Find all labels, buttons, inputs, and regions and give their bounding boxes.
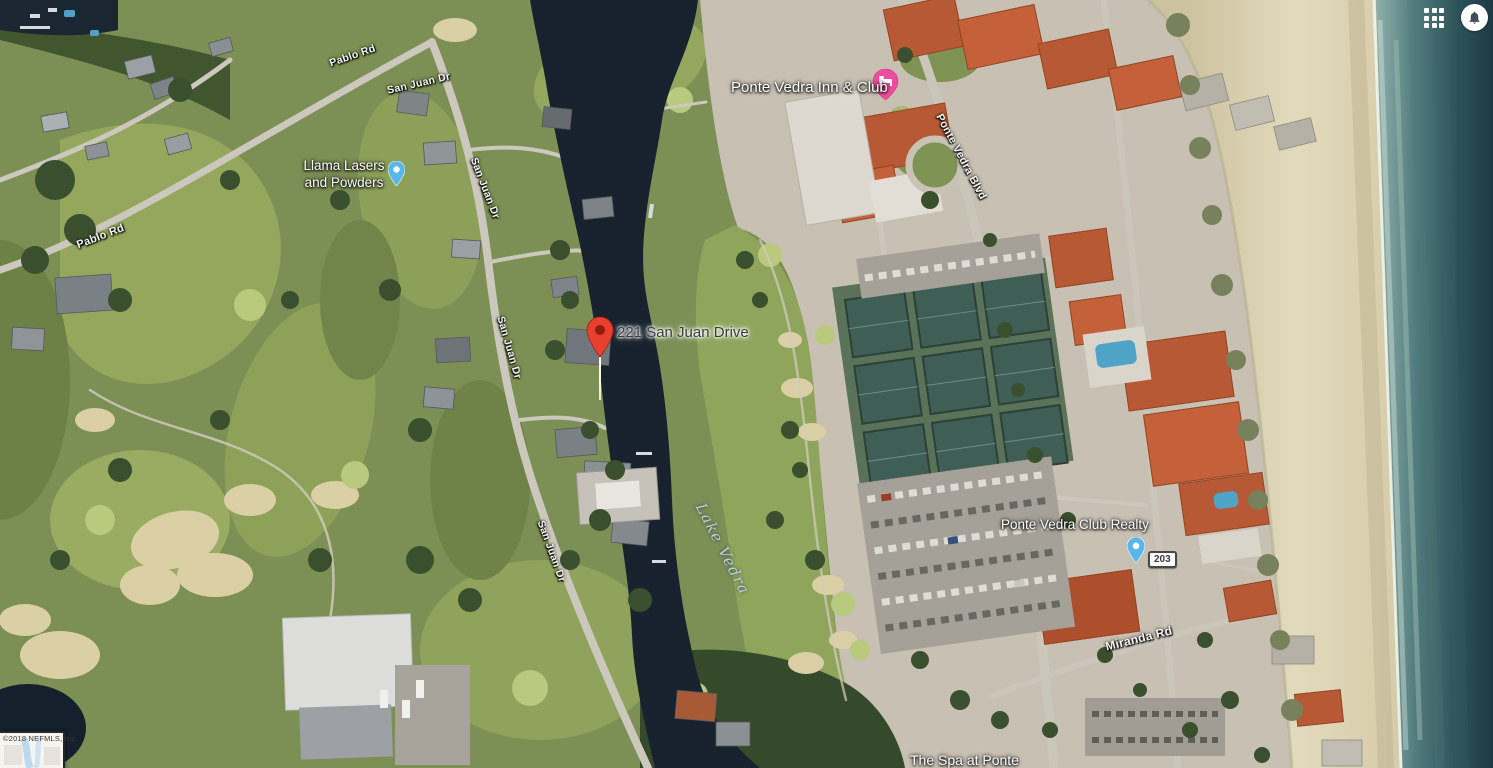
apps-grid-icon[interactable] [1424,8,1444,28]
satellite-imagery [0,0,1493,768]
route-shield-203: 203 [1148,551,1177,568]
bell-icon [1467,10,1482,25]
place-label-the-spa[interactable]: The Spa at Ponte [910,752,1019,768]
map-canvas[interactable]: Ponte Vedra Inn & Club Llama Lasers and … [0,0,1493,768]
notifications-button[interactable] [1461,4,1488,31]
poi-pin-icon[interactable] [1127,537,1145,568]
place-label-ponte-vedra-inn-club[interactable]: Ponte Vedra Inn & Club [731,79,888,96]
place-label-line2: and Powders [305,175,384,190]
copyright-attribution: ©2018 NEFMLS, Inc. [3,734,78,743]
marker-leader-line [599,357,601,400]
place-label-llama-lasers[interactable]: Llama Lasers and Powders [294,157,394,191]
searched-address-label[interactable]: 221 San Juan Drive [617,324,749,341]
place-label-ponte-vedra-club-realty[interactable]: Ponte Vedra Club Realty [1001,517,1149,532]
place-label-line1: Llama Lasers [303,158,384,173]
red-location-marker[interactable] [586,316,614,363]
